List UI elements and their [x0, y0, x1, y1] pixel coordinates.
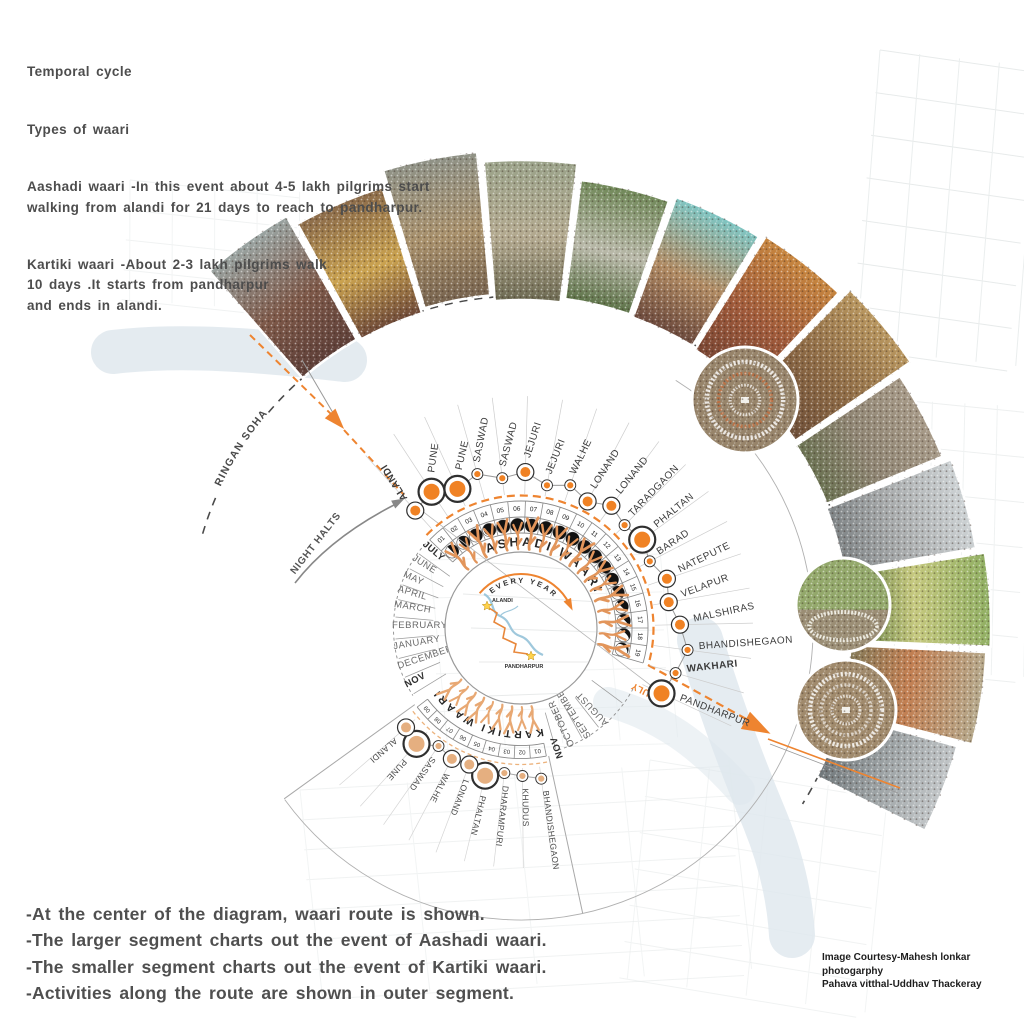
- stop-dot-phaltan: [477, 768, 493, 784]
- shape: [857, 263, 1017, 286]
- ashadi-day-08: 08: [545, 508, 554, 517]
- stop-dot-walhe: [447, 754, 457, 764]
- kartiki-description: Kartiki waari -About 2-3 lakh pilgrims w…: [27, 255, 437, 316]
- stop-dot-taradgaon: [621, 522, 627, 528]
- aashadi-description: Aashadi waari -In this event about 4-5 l…: [27, 177, 437, 218]
- kartiki-cell-divider: [544, 743, 547, 756]
- shape: [879, 50, 1024, 73]
- kartiki-day-09: 09: [423, 704, 432, 713]
- shape: [968, 63, 1007, 362]
- stop-dot-pandharpur: [654, 685, 670, 701]
- kartiki-stop-label-pune: PUNE: [385, 757, 409, 782]
- stop-dot-alandi: [410, 506, 420, 516]
- ashadi-day-14: 14: [621, 567, 631, 577]
- stop-dot-malshiras: [675, 620, 685, 630]
- shape: [1016, 407, 1024, 677]
- stop-dot-khudus: [519, 773, 525, 779]
- kartiki-stop-label-walhe: WALHE: [428, 772, 452, 805]
- ashadi-stop-label-malshiras: MALSHIRAS: [692, 601, 755, 625]
- shape: [870, 135, 1024, 158]
- shape: [518, 707, 526, 730]
- ashadi-day-07: 07: [529, 506, 537, 514]
- kartiki-stop-label-lonand: LONAND: [449, 778, 472, 817]
- kartiki-stop-label-phaltan: PHALTAN: [469, 795, 488, 837]
- stop-dot-saswad: [435, 743, 441, 749]
- shape: [875, 93, 1024, 116]
- kartiki-stop-label-alandi: ALANDI: [368, 736, 400, 765]
- ashadi-day-01: 01: [436, 534, 446, 544]
- ashadi-stop-label-saswad: SASWAD: [472, 416, 492, 463]
- header-text-block: Temporal cycle Types of waari Aashadi wa…: [27, 42, 437, 353]
- title-temporal-cycle: Temporal cycle: [27, 62, 437, 82]
- stop-dot-pune: [449, 481, 465, 497]
- ashadi-stop-label-phaltan: PHALTAN: [652, 491, 696, 530]
- kartiki-cell-divider: [482, 740, 486, 752]
- title-types-of-waari: Types of waari: [27, 120, 437, 140]
- ashadi-stop-label-pune: PUNE: [426, 442, 441, 473]
- shape: [861, 220, 1021, 243]
- stop-dot-pune: [424, 484, 440, 500]
- stop-dot-dharampuri: [501, 770, 507, 776]
- kartiki-day-02: 02: [518, 748, 525, 754]
- ashadi-stop-label-jejuri: JEJURI: [544, 437, 568, 475]
- kartiki-day-06: 06: [458, 733, 467, 742]
- stop-dot-alandi: [401, 722, 411, 732]
- ashadi-day-06: 06: [513, 506, 521, 513]
- stop-dot-barad: [647, 558, 653, 564]
- ashadi-day-15: 15: [628, 583, 637, 593]
- shape: [306, 850, 735, 886]
- ashadi-stop-label-pune: PUNE: [454, 439, 471, 471]
- ashadi-day-18: 18: [636, 632, 644, 640]
- kartiki-cell-divider: [498, 744, 500, 757]
- shape: [866, 178, 1024, 201]
- ashadi-day-19: 19: [633, 648, 641, 657]
- stop-dot-wakhari: [672, 670, 678, 676]
- ashadi-stop-label-walhe: WALHE: [568, 438, 594, 477]
- month-label-february: FEBRUARY: [392, 620, 448, 631]
- kartiki-stop-label-saswad: SASWAD: [407, 755, 438, 793]
- ashadi-day-11: 11: [589, 530, 599, 540]
- image-credits: Image Courtesy-Mahesh lonkar photogarphy…: [822, 951, 1012, 992]
- ashadi-stop-label-saswad: SASWAD: [498, 421, 521, 468]
- stop-dot-bhandishegaon: [538, 776, 544, 782]
- map-label-pandharpur: PANDHARPUR: [505, 664, 544, 670]
- stop-dot-lonand: [583, 496, 593, 506]
- ashadi-stop-label-jejuri: JEJURI: [522, 421, 544, 459]
- ashadi-day-03: 03: [464, 516, 474, 526]
- stop-dot-velapur: [664, 597, 674, 607]
- stop-dot-phaltan: [634, 532, 650, 548]
- ashadi-day-10: 10: [576, 520, 586, 530]
- stop-dot-jejuri: [544, 482, 550, 488]
- stop-dot-lonand: [606, 501, 616, 511]
- stop-dot-jejuri: [520, 467, 530, 477]
- ashadi-day-17: 17: [636, 616, 644, 624]
- month-label-march: MARCH: [393, 599, 432, 616]
- stop-dot-bhandishegaon: [684, 647, 690, 653]
- ashadi-day-16: 16: [633, 599, 641, 608]
- shape: [679, 768, 718, 987]
- ashadi-day-04: 04: [480, 510, 489, 519]
- ashadi-day-05: 05: [496, 507, 505, 515]
- kartiki-stop-label-khudus: KHUDUS: [521, 788, 531, 826]
- ashadi-stop-label-natepute: NATEPUTE: [676, 540, 732, 575]
- kartiki-day-04: 04: [487, 744, 496, 752]
- stop-dot-saswad: [499, 475, 505, 481]
- ashadi-stop-label-alandi: ALANDI: [379, 462, 410, 502]
- stop-dot-lonand: [464, 760, 474, 770]
- kartiki-day-01: 01: [533, 747, 541, 754]
- legend-notes: -At the center of the diagram, waari rou…: [26, 901, 666, 1006]
- stop-dot-walhe: [567, 482, 573, 488]
- stop-dot-natepute: [662, 574, 672, 584]
- stop-dot-saswad: [474, 471, 480, 477]
- map-label-alandi: ALANDI: [492, 598, 513, 604]
- ashadi-cell-divider: [524, 501, 525, 533]
- stop-dot-pune: [409, 736, 425, 752]
- kartiki-stop-label-dharampuri: DHARAMPURI: [494, 785, 511, 847]
- ashadi-day-12: 12: [601, 540, 611, 550]
- shape: [634, 869, 872, 908]
- pilgrim-figure-icon: [518, 707, 526, 730]
- ashadi-day-09: 09: [561, 513, 571, 522]
- ashadi-stop-label-lonand: LONAND: [614, 455, 651, 497]
- kartiki-day-08: 08: [433, 715, 442, 724]
- kartiki-day-05: 05: [472, 739, 481, 747]
- ringan-dashed-arc: [203, 493, 218, 534]
